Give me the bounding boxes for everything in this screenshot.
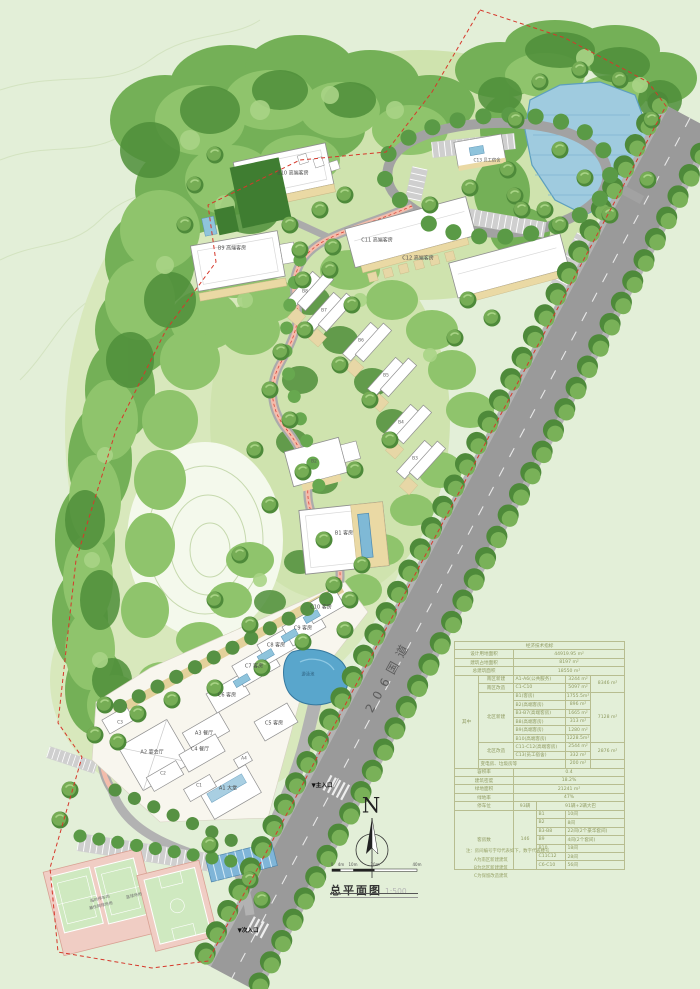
- building-label-c8: C8 客房: [267, 643, 285, 649]
- title-underline: [330, 893, 418, 898]
- building-label-b9: B9 高端客房: [218, 246, 246, 252]
- table-cell: 绿地面积: [455, 785, 514, 793]
- building-label-b4: B4: [398, 422, 404, 427]
- table-cell: 5097 m²: [566, 684, 591, 692]
- table-cell: B3-B8: [537, 827, 566, 835]
- table-cell: [591, 760, 625, 768]
- building-label-a4: A4: [241, 758, 247, 763]
- building-label-c1: C1: [196, 785, 202, 790]
- note-b: B为北区新建建筑: [474, 865, 508, 871]
- scale-bar: [332, 869, 417, 871]
- table-cell: 28间: [566, 852, 625, 860]
- table-cell: 44919.95 m²: [514, 650, 625, 658]
- table-cell: 绿地率: [455, 793, 514, 801]
- table-cell: C11-C12(高端客房): [514, 743, 566, 751]
- table-cell: 容积率: [455, 768, 514, 776]
- table-cell: 建筑密度: [455, 777, 514, 785]
- table-header: 经济技术指标: [455, 642, 625, 650]
- table-cell: B9(高端客房): [514, 726, 566, 734]
- table-cell: C6-C10: [537, 861, 566, 869]
- table-cell: 南区新建: [479, 675, 514, 683]
- table-cell: 10间: [566, 810, 625, 818]
- table-cell: 1280 m²: [566, 726, 591, 734]
- site-plan-page: B10 高端客房 B9 高端客房 C13 员工宿舍 C11 高端客房 C12 高…: [0, 0, 700, 989]
- table-cell: C13(员工宿舍): [514, 751, 566, 759]
- table-cell: 332 m²: [566, 751, 591, 759]
- note-c: C为保留改造建筑: [474, 873, 508, 879]
- table-cell: 0.4: [514, 768, 625, 776]
- scale-tick-0: 0: [331, 862, 334, 867]
- note-title: 注：房间编号字母代表如下，数字代表楼号: [466, 848, 549, 854]
- table-cell: 7128 m²: [591, 692, 625, 743]
- building-label-a3: A3 餐厅: [195, 731, 213, 737]
- table-cell: 南区改造: [479, 684, 514, 692]
- table-cell: 4间(2个套间): [566, 836, 625, 844]
- table-cell: 93辆: [514, 802, 537, 810]
- building-label-b10: B10 高端客房: [277, 171, 308, 177]
- building-label-c3: C3: [117, 722, 123, 727]
- table-cell: 146: [514, 810, 537, 869]
- table-cell: 1665 m²: [566, 709, 591, 717]
- north-letter: N: [362, 794, 380, 817]
- table-cell: 56间: [566, 861, 625, 869]
- building-label-c2: C2: [160, 773, 166, 778]
- scale-tick-10m: 10m: [349, 862, 358, 867]
- main-entrance-label: ▼主入口: [311, 783, 332, 789]
- table-cell: 18.2%: [514, 777, 625, 785]
- table-cell: 896 m²: [566, 701, 591, 709]
- scale-tick-40m: 40m: [413, 862, 422, 867]
- table-cell: 8197 m²: [514, 658, 625, 666]
- building-b1: [299, 502, 389, 574]
- pool-label: 游泳池: [302, 674, 315, 679]
- table-cell: 8346 m²: [591, 675, 625, 692]
- scale-tick-4m: 4m: [338, 862, 344, 867]
- table-cell: B3-B7(高端客房): [514, 709, 566, 717]
- building-label-c11: C11 高端客房: [361, 238, 392, 244]
- building-label-b3: B3: [412, 458, 418, 463]
- building-label-c9: C9 客房: [294, 626, 312, 632]
- building-label-b6: B6: [358, 340, 364, 345]
- note-a: A为南区新建建筑: [474, 857, 508, 863]
- building-label-b5: B5: [383, 375, 389, 380]
- side-entrance-label: ▼次入口: [237, 928, 258, 934]
- scale-tick-20m: 20m: [371, 862, 380, 867]
- table-cell: 18间: [566, 844, 625, 852]
- table-cell: B2: [537, 819, 566, 827]
- building-label-b2: B2: [311, 461, 317, 466]
- table-cell: 建筑占地面积: [455, 658, 514, 666]
- building-label-b8: B8: [302, 291, 308, 296]
- table-cell: 北区新建: [479, 692, 514, 743]
- building-label-c7: C7 客房: [245, 664, 263, 670]
- building-label-c5: C5 客房: [265, 721, 283, 727]
- table-cell: 3244 m²: [566, 675, 591, 683]
- building-label-a1: A1 大堂: [219, 786, 237, 792]
- table-cell: 停车位: [455, 802, 514, 810]
- table-cell: B2(高端客房): [514, 701, 566, 709]
- table-cell: 1228.5m²: [566, 734, 591, 742]
- table-cell: B9: [537, 836, 566, 844]
- table-cell: 91辆+2辆大巴: [537, 802, 625, 810]
- table-cell: 2544 m²: [566, 743, 591, 751]
- table-cell: 21241 m²: [514, 785, 625, 793]
- table-cell: 2876 m²: [591, 743, 625, 760]
- table-cell: B1: [537, 810, 566, 818]
- table-cell: 200 m²: [566, 760, 591, 768]
- table-cell: B8(高端客房): [514, 717, 566, 725]
- table-cell: 313 m²: [566, 717, 591, 725]
- building-label-c4: C4 餐厅: [191, 747, 209, 753]
- table-cell: 总建筑面积: [455, 667, 514, 675]
- table-cell: 设计用地面积: [455, 650, 514, 658]
- indicator-table: 经济技术指标 设计用地面积44919.95 m² 建筑占地面积8197 m² 总…: [454, 641, 625, 870]
- table-cell: B1(客房): [514, 692, 566, 700]
- building-label-a2: A2 宴会厅: [140, 750, 163, 756]
- building-label-b1: B1 客房: [335, 531, 353, 537]
- table-cell: 北区改造: [479, 743, 514, 760]
- building-label-b7: B7: [321, 310, 327, 315]
- table-cell: 18550 m²: [514, 667, 625, 675]
- table-cell: C1-C10: [514, 684, 566, 692]
- table-cell: 8间: [566, 819, 625, 827]
- table-cell: B10(高端客房): [514, 734, 566, 742]
- table-cell: 1755.5m²: [566, 692, 591, 700]
- building-label-c6: C6 客房: [218, 693, 236, 699]
- building-label-c13: C13 员工宿舍: [473, 160, 500, 165]
- table-cell: 22间(2个豪华套间): [566, 827, 625, 835]
- table-cell: 其中: [455, 675, 479, 768]
- table-cell: 47%: [514, 793, 625, 801]
- building-label-c12: C12 高端客房: [402, 256, 433, 262]
- building-label-c10: C10 客房: [310, 605, 331, 611]
- table-cell: 变电房、垃圾房等: [479, 760, 566, 768]
- table-cell: A1-A6(公共服务): [514, 675, 566, 683]
